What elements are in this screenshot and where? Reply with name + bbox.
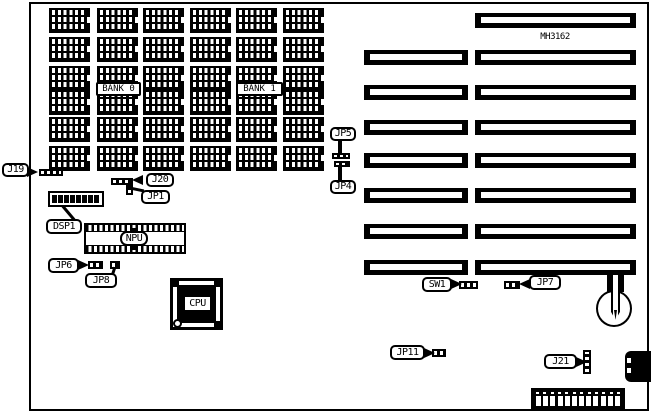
expansion-slot-long bbox=[475, 224, 636, 239]
chip-notch-icon bbox=[181, 155, 185, 161]
led-segment bbox=[58, 195, 63, 203]
chip-notch-icon bbox=[228, 75, 232, 81]
power-pin-slot bbox=[558, 396, 563, 406]
power-pin-teeth bbox=[533, 395, 623, 407]
memory-chip bbox=[190, 8, 231, 33]
chip-notch-icon bbox=[181, 99, 185, 105]
chip-notch-icon bbox=[321, 17, 325, 23]
chip-notch-icon bbox=[135, 155, 139, 161]
j20-label: J20 bbox=[146, 173, 174, 187]
chip-notch-icon bbox=[321, 99, 325, 105]
led-segment bbox=[70, 195, 75, 203]
memory-chip bbox=[190, 66, 231, 91]
jp11-pointer-icon bbox=[424, 348, 435, 358]
j19-label: J19 bbox=[2, 163, 29, 177]
memory-chip bbox=[190, 146, 231, 171]
jp5-pointer-icon bbox=[338, 140, 342, 154]
chip-notch-icon bbox=[87, 99, 91, 105]
chip-notch-icon bbox=[135, 126, 139, 132]
j20-pointer-icon bbox=[132, 175, 143, 185]
memory-chip bbox=[143, 8, 184, 33]
expansion-slot-long bbox=[475, 50, 636, 65]
bank0-label: BANK 0 bbox=[96, 82, 141, 96]
j21-pointer-icon bbox=[576, 357, 587, 367]
expansion-slot-short bbox=[364, 85, 468, 100]
jp6-jumper bbox=[88, 261, 103, 269]
power-pin-slot bbox=[572, 396, 577, 406]
memory-chip bbox=[190, 90, 231, 115]
expansion-slot-short bbox=[364, 50, 468, 65]
memory-chip bbox=[49, 146, 90, 171]
jp7-jumper bbox=[504, 281, 520, 289]
sw1-pointer-icon bbox=[451, 279, 462, 289]
expansion-slot-long bbox=[475, 120, 636, 135]
expansion-slot-long bbox=[475, 85, 636, 100]
jp6-pointer-icon bbox=[78, 260, 89, 270]
expansion-slot-short bbox=[364, 120, 468, 135]
chip-notch-icon bbox=[228, 46, 232, 52]
dsp1-label: DSP1 bbox=[46, 219, 82, 234]
sw1-label: SW1 bbox=[422, 277, 452, 292]
memory-chip bbox=[283, 66, 324, 91]
j21-label: J21 bbox=[544, 354, 577, 369]
memory-chip bbox=[236, 8, 277, 33]
chip-notch-icon bbox=[228, 99, 232, 105]
chip-notch-icon bbox=[321, 75, 325, 81]
jp4-label: JP4 bbox=[330, 180, 356, 194]
cpu-pin1-marker-icon bbox=[173, 319, 182, 328]
jp7-label: JP7 bbox=[529, 275, 561, 290]
chip-notch-icon bbox=[87, 155, 91, 161]
memory-chip bbox=[143, 146, 184, 171]
chip-notch-icon bbox=[321, 46, 325, 52]
chip-notch-icon bbox=[228, 17, 232, 23]
memory-chip bbox=[49, 90, 90, 115]
dsp1-led-display bbox=[48, 191, 104, 207]
chip-notch-icon bbox=[274, 99, 278, 105]
chip-notch-icon bbox=[181, 17, 185, 23]
jp11-label: JP11 bbox=[390, 345, 425, 360]
npu-label: NPU bbox=[120, 231, 148, 246]
led-segment bbox=[94, 195, 99, 203]
memory-chip bbox=[97, 117, 138, 142]
j19-connector bbox=[39, 169, 63, 176]
memory-chip bbox=[49, 66, 90, 91]
memory-chip bbox=[190, 37, 231, 62]
chip-notch-icon bbox=[181, 126, 185, 132]
memory-chip bbox=[283, 90, 324, 115]
led-segment bbox=[88, 195, 93, 203]
power-pin-slot bbox=[565, 396, 570, 406]
chip-notch-icon bbox=[135, 46, 139, 52]
power-pin-slot bbox=[579, 396, 584, 406]
expansion-slot-long bbox=[475, 188, 636, 203]
power-pin-slot bbox=[593, 396, 598, 406]
memory-chip bbox=[236, 117, 277, 142]
chip-notch-icon bbox=[321, 155, 325, 161]
power-connector bbox=[531, 388, 625, 409]
memory-chip bbox=[283, 117, 324, 142]
memory-chip bbox=[283, 8, 324, 33]
chip-notch-icon bbox=[135, 75, 139, 81]
jp4-jumper bbox=[334, 161, 350, 167]
expansion-slot-long bbox=[475, 260, 636, 275]
chip-notch-icon bbox=[321, 126, 325, 132]
jp8-label: JP8 bbox=[85, 273, 117, 288]
keyboard-connector bbox=[625, 351, 651, 382]
kbd-notch-icon bbox=[627, 358, 631, 363]
memory-chip bbox=[283, 146, 324, 171]
chip-notch-icon bbox=[274, 17, 278, 23]
cpu-corner-icon bbox=[170, 278, 179, 287]
memory-chip bbox=[283, 37, 324, 62]
memory-chip bbox=[97, 146, 138, 171]
chip-notch-icon bbox=[181, 46, 185, 52]
motherboard-diagram: BANK 0 BANK 1 MH3162 J19 J20 JP1 DSP1 NP… bbox=[0, 0, 653, 415]
memory-chip bbox=[143, 66, 184, 91]
led-segment bbox=[64, 195, 69, 203]
chip-notch-icon bbox=[228, 126, 232, 132]
power-pin-slot bbox=[550, 396, 555, 406]
battery-clip-icon bbox=[607, 275, 624, 292]
chip-notch-icon bbox=[87, 75, 91, 81]
memory-chip bbox=[49, 117, 90, 142]
power-pin-slot bbox=[615, 396, 620, 406]
j20-jumper bbox=[111, 178, 133, 185]
expansion-slot-short bbox=[364, 260, 468, 275]
chip-notch-icon bbox=[274, 126, 278, 132]
chip-notch-icon bbox=[274, 46, 278, 52]
chip-notch-icon bbox=[135, 99, 139, 105]
chip-notch-icon bbox=[181, 75, 185, 81]
memory-chip bbox=[143, 37, 184, 62]
memory-chip bbox=[49, 8, 90, 33]
chip-notch-icon bbox=[87, 17, 91, 23]
jp4-pointer-icon bbox=[338, 166, 342, 181]
led-segment bbox=[76, 195, 81, 203]
chip-notch-icon bbox=[228, 155, 232, 161]
power-pin-slot bbox=[586, 396, 591, 406]
memory-chip bbox=[143, 90, 184, 115]
expansion-slot-short bbox=[364, 153, 468, 168]
memory-chip bbox=[236, 37, 277, 62]
kbd-notch-icon bbox=[627, 368, 631, 373]
memory-chip bbox=[190, 117, 231, 142]
memory-chip bbox=[49, 37, 90, 62]
part-number-text: MH3162 bbox=[532, 31, 578, 43]
expansion-slot-short bbox=[364, 224, 468, 239]
chip-notch-icon bbox=[87, 46, 91, 52]
chip-notch-icon bbox=[274, 75, 278, 81]
cpu-corner-icon bbox=[214, 278, 223, 287]
power-pin-slot bbox=[608, 396, 613, 406]
cpu-corner-icon bbox=[214, 321, 223, 330]
chip-notch-icon bbox=[87, 126, 91, 132]
led-segment bbox=[52, 195, 57, 203]
memory-chip bbox=[236, 146, 277, 171]
cpu-label: CPU bbox=[185, 297, 210, 310]
memory-chip bbox=[97, 8, 138, 33]
expansion-slot-long bbox=[475, 153, 636, 168]
memory-chip bbox=[97, 37, 138, 62]
jp6-label: JP6 bbox=[48, 258, 79, 273]
chip-notch-icon bbox=[135, 17, 139, 23]
expansion-slot-long bbox=[475, 13, 636, 28]
chip-notch-icon bbox=[274, 155, 278, 161]
led-segment bbox=[82, 195, 87, 203]
jp1-label: JP1 bbox=[141, 190, 170, 204]
power-pin-slot bbox=[536, 396, 541, 406]
memory-chip bbox=[143, 117, 184, 142]
expansion-slot-short bbox=[364, 188, 468, 203]
power-pin-slot bbox=[601, 396, 606, 406]
power-pin-slot bbox=[543, 396, 548, 406]
bank1-label: BANK 1 bbox=[236, 82, 283, 96]
jp5-label: JP5 bbox=[330, 127, 356, 141]
